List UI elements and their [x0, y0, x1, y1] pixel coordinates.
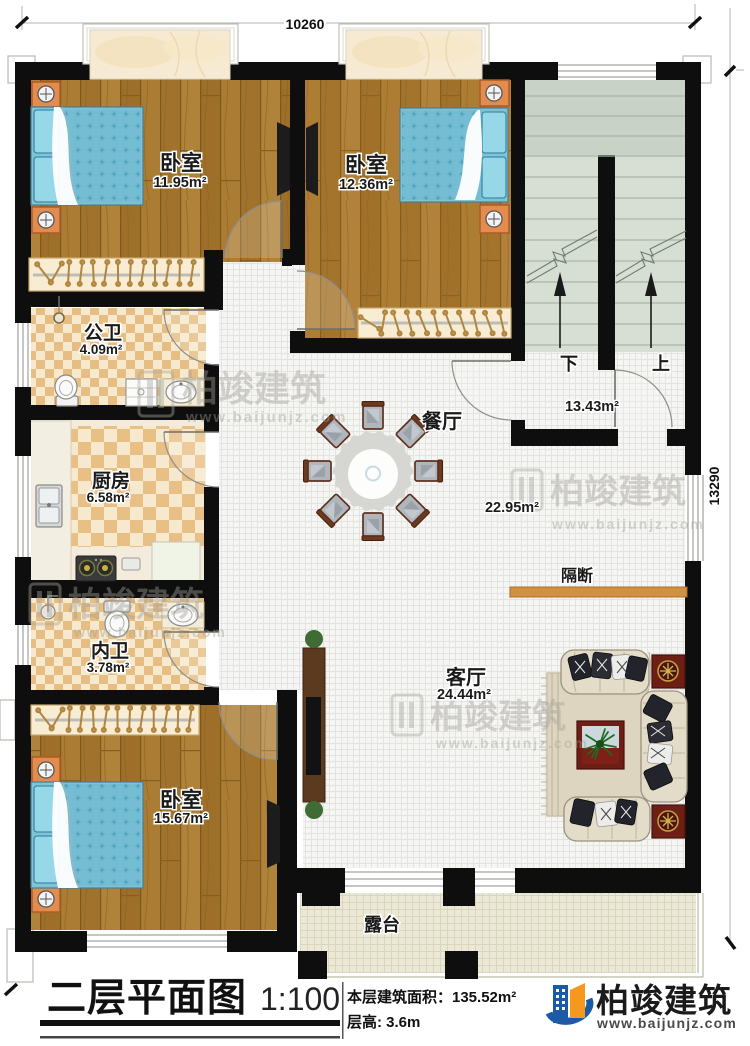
- svg-text:22.95m²: 22.95m²: [485, 500, 539, 516]
- svg-text:卧室: 卧室: [160, 788, 202, 812]
- svg-text:柏竣建筑: 柏竣建筑: [182, 368, 326, 409]
- svg-text:露台: 露台: [364, 914, 400, 935]
- svg-text:13.43m²: 13.43m²: [565, 399, 619, 415]
- svg-text:www.baijunjz.com: www.baijunjz.com: [185, 409, 347, 426]
- svg-text:本层建筑面积：135.52m²: 本层建筑面积：135.52m²: [347, 988, 516, 1006]
- svg-text:层高: 3.6m: 层高: 3.6m: [347, 1013, 420, 1031]
- svg-text:www.baijunjz.com: www.baijunjz.com: [551, 516, 705, 532]
- svg-text:柏竣建筑: 柏竣建筑: [550, 472, 686, 511]
- svg-text:内卫: 内卫: [91, 639, 129, 662]
- svg-text:13290: 13290: [706, 466, 722, 505]
- svg-text:上: 上: [652, 354, 670, 374]
- svg-text:24.44m²: 24.44m²: [437, 687, 491, 703]
- svg-text:15.67m²: 15.67m²: [154, 811, 208, 827]
- svg-text:下: 下: [560, 354, 578, 374]
- svg-text:二层平面图: 二层平面图: [47, 977, 247, 1020]
- svg-text:卧室: 卧室: [160, 151, 202, 175]
- svg-text:客厅: 客厅: [445, 665, 486, 689]
- svg-text:www.baijunjz.com: www.baijunjz.com: [435, 735, 589, 751]
- svg-text:www.baijunjz.com: www.baijunjz.com: [596, 1015, 737, 1031]
- svg-text:厨房: 厨房: [92, 469, 130, 492]
- svg-text:公卫: 公卫: [84, 322, 122, 344]
- svg-text:www.baijunjz.com: www.baijunjz.com: [73, 624, 227, 640]
- svg-text:餐厅: 餐厅: [422, 409, 462, 433]
- svg-text:11.95m²: 11.95m²: [153, 175, 206, 191]
- svg-text:10260: 10260: [286, 16, 325, 32]
- svg-text:3.78m²: 3.78m²: [87, 660, 130, 675]
- svg-text:1:100: 1:100: [260, 981, 340, 1017]
- svg-text:柏竣建筑: 柏竣建筑: [596, 982, 732, 1019]
- svg-text:12.36m²: 12.36m²: [339, 177, 393, 193]
- svg-text:隔断: 隔断: [561, 566, 593, 585]
- svg-text:6.58m²: 6.58m²: [87, 490, 130, 505]
- svg-text:4.09m²: 4.09m²: [80, 342, 123, 357]
- svg-text:卧室: 卧室: [345, 153, 387, 177]
- svg-text:柏竣建筑: 柏竣建筑: [68, 585, 204, 624]
